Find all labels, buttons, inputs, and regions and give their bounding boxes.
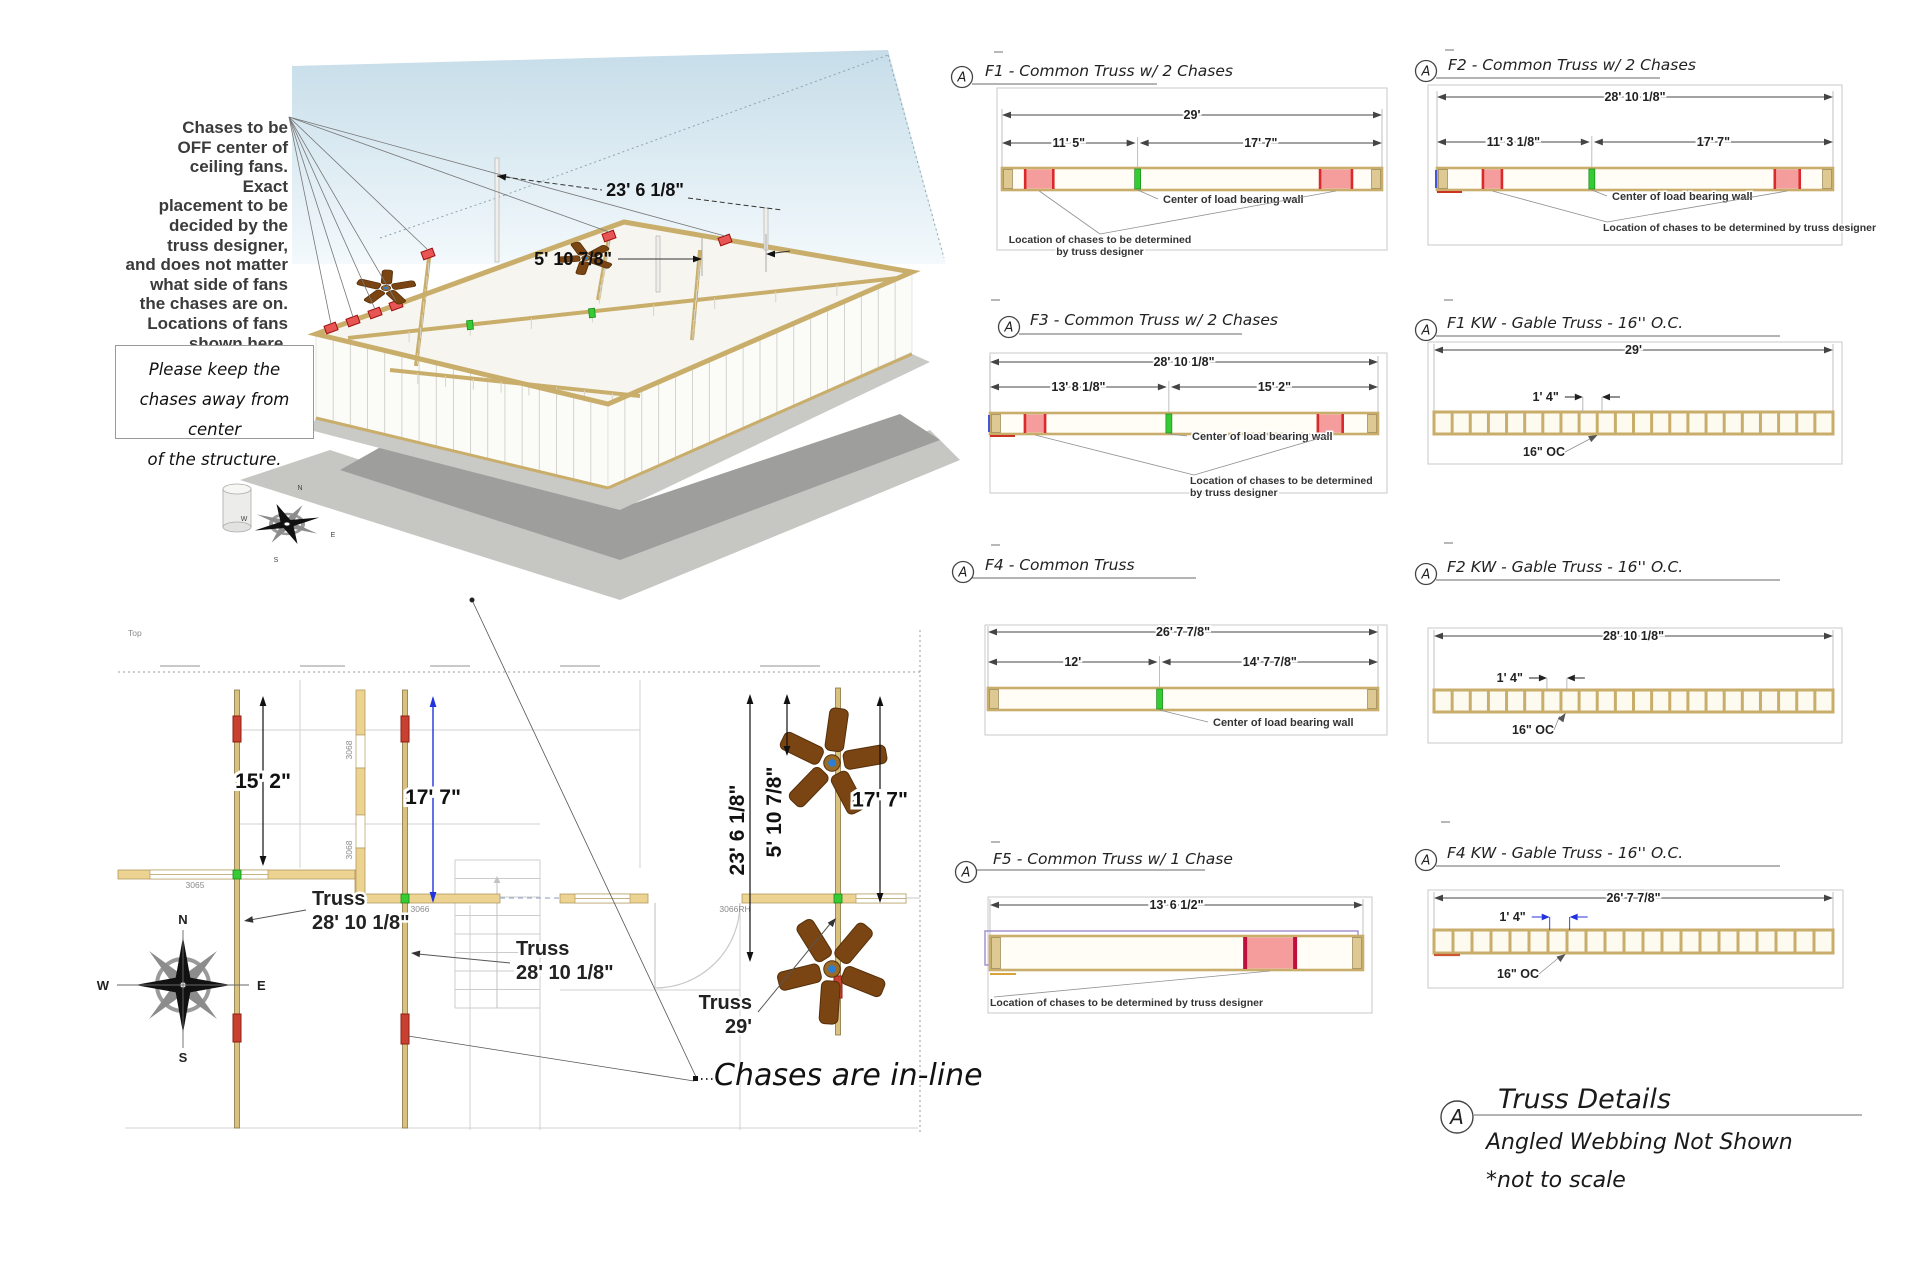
chase-block [1320,170,1352,189]
compass-plan-s: S [179,1050,188,1065]
dim-17-7-blue: 17' 7" [405,696,461,903]
diagram-frame [1428,628,1842,743]
dim-right: 17' 7" [1697,135,1730,149]
chase-segment [401,1014,409,1044]
chase-location-label: by truss designer [1056,246,1144,258]
sheet-title: Truss Details [1498,1084,1671,1115]
truss-diagram-F4: AF4 - Common Truss26' 7 7/8"12'14' 7 7/8… [953,545,1388,735]
arrowhead [1369,384,1378,391]
dim-total: 13' 6 1/2" [1149,898,1203,912]
truss-diagram-F1KW: AF1 KW - Gable Truss - 16'' O.C.29'1' 4"… [1416,300,1843,464]
arrowhead [1158,384,1167,391]
truss-label-3b: 29' [725,1016,752,1038]
bearing-wall-block [1589,169,1595,189]
dim-5-rot-label: 5' 10 7/8" [763,767,786,858]
keep-chases-note: Please keep the chases away from center … [115,345,314,439]
chase-location-label: Location of chases to be determined [1190,475,1373,487]
chase-block [1025,170,1053,189]
chase-block [1318,415,1343,433]
dim-15-2: 15' 2" [235,770,291,793]
truss-label-1: Truss [312,888,365,910]
dim-left: 13' 8 1/8" [1051,380,1105,394]
bearing-wall-mark-3d [467,320,474,330]
arrowhead [1575,394,1583,401]
dim-17-7-blue-label: 17' 7" [405,786,461,809]
compass-plan-n: N [178,912,187,927]
bearing-wall-block [1135,169,1141,189]
center-wall-label: Center of load bearing wall [1192,431,1333,443]
section-marker-letter: A [957,71,967,86]
dim-total: 29' [1625,343,1642,357]
chase-location-label: Location of chases to be determined by t… [990,997,1263,1009]
arrowhead [430,696,437,707]
center-wall-label: Center of load bearing wall [1163,194,1304,206]
bearing-wall-mark-3d [589,308,596,318]
truss-diagram-F2: AF2 - Common Truss w/ 2 Chases28' 10 1/8… [1416,50,1877,245]
truss-label-3: Truss [699,992,752,1014]
dim-total: 29' [1184,108,1201,122]
center-wall-label: Center of load bearing wall [1213,717,1354,729]
chase-block [1483,170,1502,189]
arrowhead [1149,659,1158,666]
dim-right: 17' 7" [1244,136,1277,150]
chases-inline-note: Chases are in-line [714,1058,983,1093]
arrowhead [1162,659,1171,666]
truss-diagram-F3: AF3 - Common Truss w/ 2 Chases28' 10 1/8… [989,300,1387,499]
door-label-3066: 3066 [411,904,430,914]
door-label-3068: 3068 [344,840,354,859]
stairs [455,860,540,1008]
bearing-wall-block [1157,689,1163,709]
section-marker-letter: A [1421,65,1431,80]
section-marker-letter: A [1004,321,1014,336]
arrowhead [1373,112,1382,119]
bearing-wall-mark [233,870,241,879]
sheet-subtitle-webbing: Angled Webbing Not Shown [1486,1130,1793,1155]
arrowhead [260,696,267,706]
truss-line [235,690,240,1128]
arrowhead [747,694,754,704]
arrowhead [990,902,999,909]
arrowhead [1373,140,1382,147]
arrowhead [1002,112,1011,119]
chase-location-label: by truss designer [1190,487,1278,499]
arrowhead [1581,139,1590,146]
chase-block [1025,415,1045,433]
compass-n: N [297,485,302,492]
dim-left: 11' 5" [1053,136,1086,150]
arrowhead [1437,139,1446,146]
diagram-title: F5 - Common Truss w/ 1 Chase [993,850,1233,868]
dim-right: 15' 2" [1258,380,1291,394]
arrowhead [1434,895,1443,902]
arrowhead [1434,347,1443,354]
door-label-3066rh: 3066RH [719,904,750,914]
dim-right: 14' 7 7/8" [1243,655,1297,669]
arrowhead [1570,914,1578,921]
arrowhead [1824,94,1833,101]
dim-16-oc: 16" OC [1523,445,1565,459]
diagram-title: F1 - Common Truss w/ 2 Chases [985,62,1233,80]
plan-wall [358,894,500,903]
dim-17-7-right: 17' 7" [852,789,908,812]
arrowhead [988,629,997,636]
plan-corner-label: Top [128,628,142,638]
diagram-title: F2 - Common Truss w/ 2 Chases [1448,56,1696,74]
arrowhead [1140,140,1149,147]
bearing-wall-mark [834,894,842,903]
dim-left: 12' [1064,655,1081,669]
dim-23-6: 23' 6 1/8" [606,180,684,200]
truss-bar [990,936,1363,970]
truss-bar [988,688,1378,710]
section-marker-letter: A [1421,324,1431,339]
section-marker-letter: A [1421,854,1431,869]
diagram-title: F1 KW - Gable Truss - 16'' O.C. [1447,314,1683,332]
dim-total: 28' 10 1/8" [1153,355,1214,369]
dim-total: 28' 10 1/8" [1603,629,1664,643]
dim-16-oc: 16" OC [1512,723,1554,737]
diagram-title: F3 - Common Truss w/ 2 Chases [1030,311,1278,329]
arrowhead [1437,94,1446,101]
inline-leader [408,1036,694,1081]
dim-5-10: 5' 10 7/8" [534,249,612,269]
arrowhead [1824,347,1833,354]
compass-plan-w: W [97,978,110,993]
arrowhead [1354,902,1363,909]
arrowhead [494,876,501,883]
arrowhead [1567,675,1575,682]
arrowhead [1369,659,1378,666]
arrowhead [1539,675,1547,682]
dim-total: 26' 7 7/8" [1606,891,1660,905]
door-label-3065: 3065 [186,880,205,890]
truss-diagram-F2KW: AF2 KW - Gable Truss - 16'' O.C.28' 10 1… [1416,543,1843,743]
chase-segment [401,716,409,742]
truss-diagram-F5: AF5 - Common Truss w/ 1 Chase13' 6 1/2"L… [956,842,1373,1013]
dim-1-4: 1' 4" [1497,671,1523,685]
truss-diagram-F4KW: AF4 KW - Gable Truss - 16'' O.C.26' 7 7/… [1416,822,1844,988]
compass-3d [244,497,330,550]
dim-left: 11' 3 1/8" [1487,135,1540,149]
chase-location-label: Location of chases to be determined [1009,234,1192,246]
compass-w: W [241,516,248,523]
chase-segment [233,1014,241,1042]
center-wall-label: Center of load bearing wall [1612,191,1753,203]
gable-truss-bar [1434,930,1833,953]
arrowhead [988,659,997,666]
arrowhead [877,696,884,706]
truss-label-2b: 28' 10 1/8" [516,962,614,984]
arrowhead [990,359,999,366]
truss-line [403,690,408,1128]
arrowhead [1369,629,1378,636]
floor-plan: 306530663066RH30683068Top15' 2"17' 7"23'… [97,598,920,1136]
truss-label-2: Truss [516,938,569,960]
iso-view-3d: 23' 6 1/8"5' 10 7/8"NWES [223,50,960,600]
dim-1-4: 1' 4" [1533,390,1559,404]
diagram-frame [1428,342,1842,464]
chase-block [1245,938,1295,969]
sheet-marker-letter: A [1448,1105,1464,1129]
chase-location-label: Location of chases to be determined by t… [1603,222,1876,234]
dim-23-rot-label: 23' 6 1/8" [726,785,749,876]
diagram-frame [1428,85,1842,245]
bearing-wall-mark [401,894,409,903]
diagram-title: F2 KW - Gable Truss - 16'' O.C. [1447,558,1683,576]
dim-total: 26' 7 7/8" [1156,625,1210,639]
sheet-subtitle-scale: *not to scale [1486,1168,1626,1193]
reference-stud [656,236,660,292]
arrowhead [1824,139,1833,146]
arrowhead [1369,359,1378,366]
dim-1-4: 1' 4" [1499,910,1525,924]
arrowhead [1127,140,1136,147]
section-marker-letter: A [1421,568,1431,583]
door-arc [655,903,740,988]
diagram-title: F4 - Common Truss [985,556,1135,574]
arrowhead [1602,394,1610,401]
arrowhead [1594,139,1603,146]
section-marker-letter: A [961,866,971,881]
dim-total: 28' 10 1/8" [1604,90,1665,104]
arrowhead [784,694,791,704]
arrowhead [990,384,999,391]
truss-label-1b: 28' 10 1/8" [312,912,410,934]
arrowhead [1002,140,1011,147]
door-label-3068: 3068 [344,740,354,759]
arrowhead [243,916,253,924]
dim-16-oc: 16" OC [1497,967,1539,981]
arrowhead [1434,633,1443,640]
chase-segment [233,716,241,742]
compass-plan-e: E [257,978,266,993]
compass-e: E [331,532,336,539]
arrowhead [260,856,267,866]
chase-block [1775,170,1800,189]
arrowhead [1171,384,1180,391]
chases-note-text: Chases to be OFF center of ceiling fans.… [98,118,288,353]
arrowhead [1542,914,1550,921]
arrowhead [1824,895,1833,902]
section-marker-letter: A [958,566,968,581]
arrowhead [1824,633,1833,640]
truss-details-sheet: 23' 6 1/8"5' 10 7/8"NWES306530663066RH30… [0,0,1920,1280]
bearing-wall-block [1166,414,1172,433]
diagram-title: F4 KW - Gable Truss - 16'' O.C. [1447,844,1683,862]
arrowhead [747,952,754,962]
arrowhead [411,950,421,958]
compass-s: S [274,557,279,564]
truss-diagram-F1: AF1 - Common Truss w/ 2 Chases29'11' 5"1… [952,52,1388,258]
